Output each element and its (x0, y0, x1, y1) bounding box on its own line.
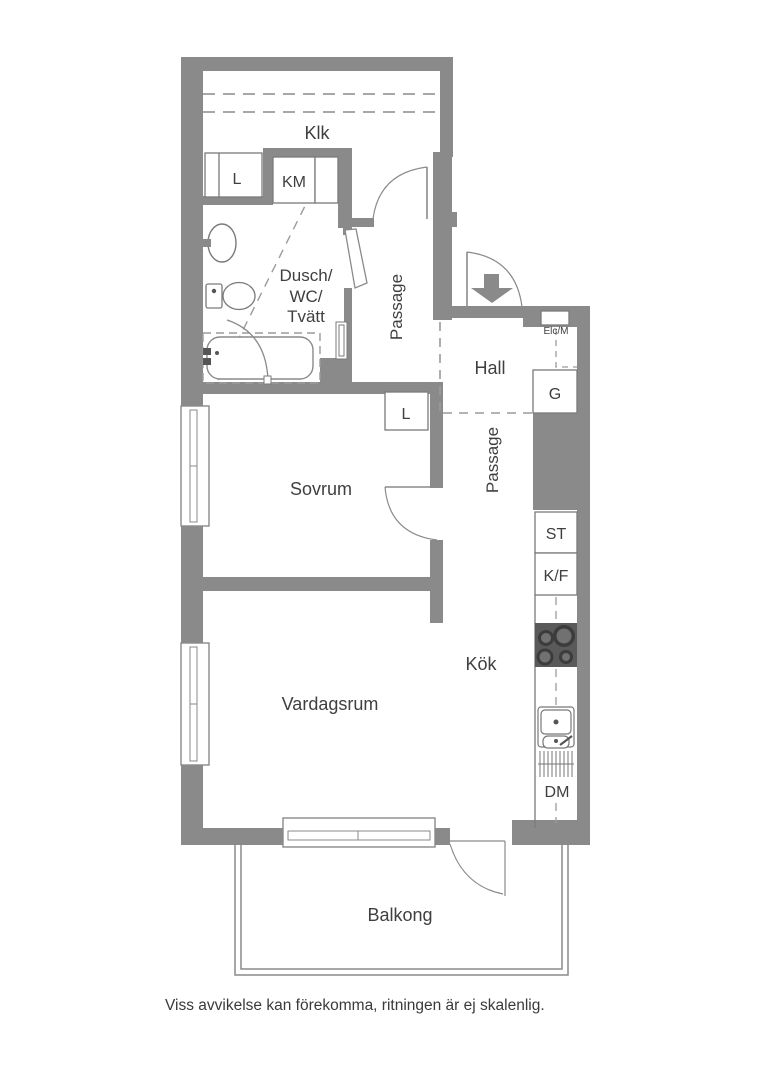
door-klk (373, 167, 427, 219)
sink-faucet-icon (203, 239, 211, 247)
label-passage-upper: Passage (387, 274, 406, 340)
label-balkong: Balkong (367, 905, 432, 925)
wall-top (181, 57, 453, 71)
wall-balcony-jamb (435, 828, 450, 845)
entrance-arrow-icon (471, 274, 513, 303)
radiator-niche (336, 322, 347, 359)
floorplan-page: Klk L KM Dusch/ WC/ Tvätt Passage Hall E… (0, 0, 763, 1080)
wall-kitchen-shaft (533, 413, 577, 510)
wall-bath-corner (320, 358, 352, 384)
wall-km-east (338, 148, 352, 228)
label-elcm: Elc/M (544, 326, 569, 337)
label-sovrum: Sovrum (290, 479, 352, 499)
label-bathroom-2: WC/ (289, 287, 322, 306)
cabinet-boxes (205, 153, 577, 828)
wall-bottom-left (181, 828, 283, 845)
label-dm: DM (545, 784, 570, 801)
km-side-compartment (315, 157, 338, 203)
label-passage-lower: Passage (483, 427, 502, 493)
sink-icon (208, 224, 236, 262)
elcm-box (541, 311, 569, 325)
label-bathroom-1: Dusch/ (280, 266, 333, 285)
kitchen-sink-icon (538, 707, 574, 748)
disclaimer-text: Viss avvikelse kan förekomma, ritningen … (165, 997, 545, 1014)
label-vardagsrum: Vardagsrum (282, 694, 379, 714)
label-km: KM (282, 174, 306, 191)
stove-icon (535, 623, 577, 667)
wall-bottom-right (512, 820, 590, 845)
label-kf: K/F (544, 568, 569, 585)
wall-sovrum-south (181, 577, 443, 591)
wall-km-top (263, 148, 338, 157)
label-closet-l1: L (233, 171, 242, 188)
wall-entry-flange (445, 212, 457, 227)
wall-sovrum-east-upper (430, 382, 443, 488)
wall-right (577, 318, 590, 845)
window-balcony (283, 818, 435, 847)
door-balcony (447, 841, 505, 896)
wall-hall-top-a (450, 306, 523, 318)
wall-stub (430, 591, 443, 623)
floorplan-drawing: Klk L KM Dusch/ WC/ Tvätt Passage Hall E… (0, 0, 763, 1080)
label-st: ST (546, 526, 567, 543)
wall-klk-door-jamb (352, 218, 374, 227)
label-wardrobe-g: G (549, 386, 561, 403)
label-hall: Hall (474, 358, 505, 378)
door-bathroom-leaf (345, 229, 367, 288)
drainboard-icon (538, 751, 574, 777)
label-bathroom-3: Tvätt (287, 307, 325, 326)
wall-klk-east (440, 57, 453, 157)
window-sovrum (181, 406, 209, 526)
window-vardagsrum (181, 643, 209, 765)
door-sovrum (385, 487, 440, 540)
label-klk: Klk (304, 123, 330, 143)
label-kok: Kök (465, 654, 497, 674)
shower-door-handle (264, 376, 271, 384)
windows (181, 406, 435, 847)
toilet-icon (206, 283, 255, 310)
label-closet-l2: L (402, 406, 411, 423)
wall-passage-east (433, 152, 452, 320)
